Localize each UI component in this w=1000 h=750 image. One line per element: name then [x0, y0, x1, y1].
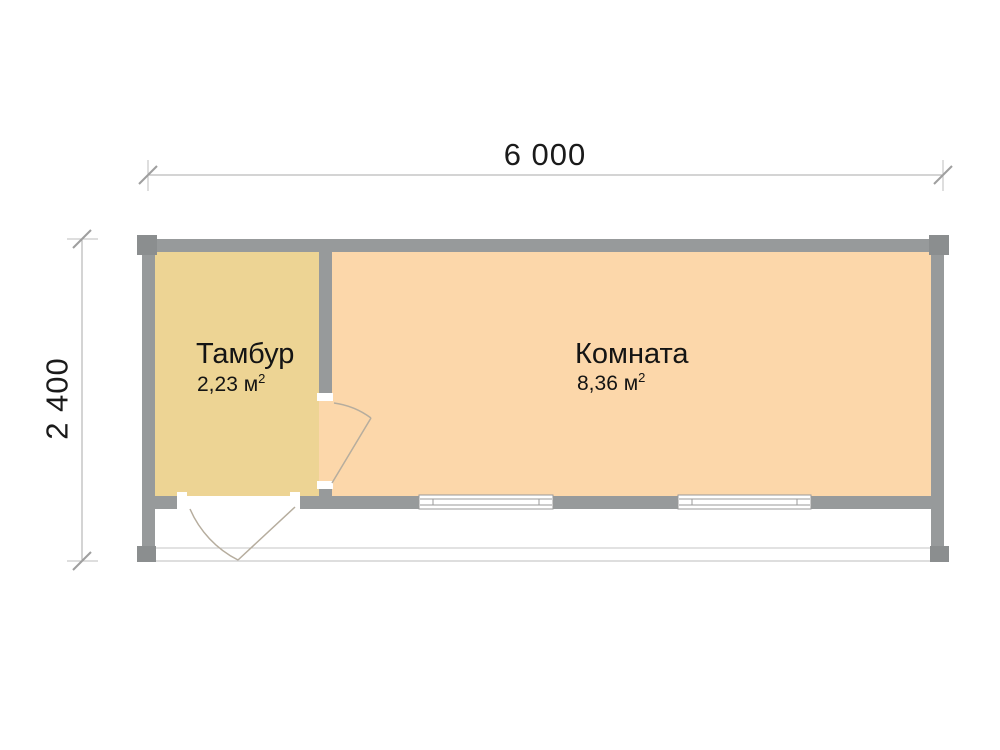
entrance-door-swing [190, 507, 295, 560]
interior-door-jamb-top [317, 393, 333, 401]
window-2 [678, 495, 811, 509]
corner-post-bottom-left [137, 546, 156, 562]
room-tambur-area-value: 2,23 м [197, 373, 258, 396]
floor-plan-canvas: 6 000 2 400 Тамбур 2,23 м2 Комната 8,36 … [0, 0, 1000, 750]
entrance-door-jamb-left [177, 492, 187, 512]
room-tambur-name: Тамбур [196, 340, 294, 369]
interior-door-opening-fill [319, 401, 332, 481]
wall-bottom-seg-2 [300, 496, 419, 509]
entrance-door-jamb-right [290, 492, 300, 512]
room-tambur-area: 2,23 м2 [197, 372, 265, 395]
wall-interior-stub [319, 489, 332, 496]
wall-top [142, 239, 944, 252]
interior-door-jamb-bottom [317, 481, 333, 489]
left-dimension-label: 2 400 [42, 249, 73, 549]
room-komnata-name: Комната [575, 340, 689, 369]
room-komnata-area: 8,36 м2 [577, 371, 645, 394]
room-komnata-area-value: 8,36 м [577, 372, 638, 395]
room-komnata-area-sup: 2 [638, 370, 645, 385]
wall-bottom-seg-3 [553, 496, 678, 509]
wall-bottom-seg-4 [811, 496, 931, 509]
wall-interior-upper [319, 252, 332, 393]
wall-left [142, 239, 155, 562]
window-1 [419, 495, 553, 509]
room-tambur-area-sup: 2 [258, 371, 265, 386]
top-dimension-label: 6 000 [395, 139, 695, 170]
corner-post-bottom-right [930, 546, 949, 562]
corner-post-top-right [929, 235, 949, 255]
wall-right [931, 239, 944, 562]
corner-post-top-left [137, 235, 157, 255]
wall-bottom-seg-1 [142, 496, 177, 509]
deck-outline [156, 548, 930, 561]
